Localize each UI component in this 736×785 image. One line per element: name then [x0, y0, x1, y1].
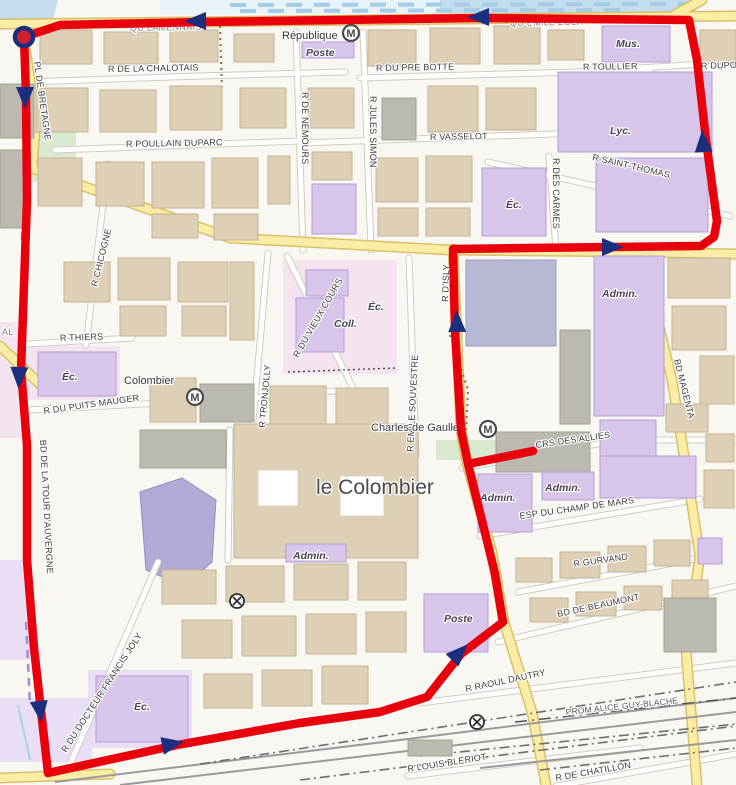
building — [408, 740, 452, 756]
building — [214, 214, 258, 240]
map-label: Éc. — [62, 370, 78, 383]
map-label: le Colombier — [316, 476, 434, 499]
building — [306, 614, 356, 654]
building — [378, 208, 418, 236]
map-label: AL — [2, 327, 14, 337]
building — [104, 32, 158, 64]
map-label: Admin. — [479, 492, 516, 504]
building — [558, 72, 712, 152]
building — [170, 30, 218, 62]
building — [664, 598, 716, 652]
building — [212, 158, 258, 208]
map-label: Éc. — [368, 300, 384, 313]
building — [262, 670, 312, 706]
building — [38, 158, 82, 206]
map-label: République — [282, 30, 338, 42]
route-start-marker[interactable] — [15, 28, 33, 46]
building — [118, 258, 170, 300]
map-label: PROM ALICE GUY-BLACHE — [565, 695, 679, 717]
building — [200, 384, 254, 422]
building — [336, 388, 388, 426]
building — [668, 258, 730, 298]
building — [672, 306, 726, 350]
building — [700, 30, 736, 64]
building — [170, 86, 222, 130]
map-label: R DE NEMOURS — [300, 92, 310, 164]
building — [654, 540, 690, 566]
building — [204, 674, 252, 708]
map-label: Admin. — [292, 550, 329, 562]
map-canvas[interactable]: MMM QU LAMENNAISQU EMILE ZOLAALR DE LA C… — [0, 0, 736, 785]
building — [100, 90, 156, 132]
building — [426, 208, 470, 236]
map-label: R POULLAIN DUPARC — [126, 137, 223, 149]
building — [494, 26, 540, 64]
building — [382, 98, 416, 140]
building — [516, 558, 552, 582]
building — [152, 162, 204, 208]
map-label: R DE LA CHALOTAIS — [108, 62, 199, 74]
map-label: R DUPO — [701, 60, 736, 71]
building — [430, 28, 480, 64]
svg-text:M: M — [483, 424, 492, 436]
building — [96, 162, 144, 206]
building — [152, 214, 198, 238]
building — [182, 620, 232, 658]
map-viewport[interactable]: MMM QU LAMENNAISQU EMILE ZOLAALR DE LA C… — [0, 0, 736, 785]
building — [700, 356, 734, 404]
building — [178, 262, 228, 302]
building — [376, 158, 418, 202]
building — [240, 88, 286, 128]
map-label: Poste — [306, 47, 335, 59]
building — [120, 306, 166, 336]
building — [40, 30, 92, 64]
building — [548, 30, 584, 60]
metro-station-icon[interactable]: M — [187, 389, 203, 405]
map-label: Colombier — [124, 375, 174, 387]
crossing-icon — [470, 715, 484, 729]
building — [466, 260, 556, 346]
map-label: Poste — [444, 613, 473, 625]
building — [368, 30, 416, 66]
building — [308, 88, 354, 128]
building — [560, 330, 590, 424]
svg-text:M: M — [190, 392, 199, 404]
map-label: Charles de Gaulle — [371, 422, 459, 434]
building — [698, 538, 722, 564]
metro-station-icon[interactable]: M — [480, 421, 496, 437]
building — [268, 156, 290, 204]
svg-text:M: M — [346, 28, 355, 40]
building — [600, 456, 696, 498]
building — [234, 34, 274, 62]
building — [312, 152, 352, 180]
building — [704, 470, 734, 508]
map-label: R DES CARMES — [551, 158, 561, 229]
building — [426, 156, 472, 202]
building — [230, 262, 254, 340]
map-label: R THIERS — [60, 331, 104, 343]
building — [428, 86, 478, 132]
building — [182, 306, 226, 336]
building — [706, 434, 734, 462]
map-label: Admin. — [544, 482, 581, 494]
building — [294, 564, 348, 600]
building — [140, 430, 226, 468]
map-label: Mus. — [616, 38, 640, 50]
building — [358, 562, 406, 600]
map-label: BD DE LA TOUR D'AUVERGNE — [38, 440, 55, 575]
building — [366, 612, 406, 652]
map-label: R DU PRE BOTTE — [376, 62, 454, 73]
crossing-icon — [230, 594, 244, 608]
building — [242, 616, 296, 656]
map-label: Coll. — [334, 318, 357, 330]
building — [162, 570, 216, 604]
building — [594, 256, 664, 416]
metro-station-icon[interactable]: M — [343, 25, 359, 41]
map-label: Éc. — [506, 198, 522, 211]
building — [486, 88, 536, 130]
map-label: Lyc. — [610, 125, 631, 137]
map-label: Admin. — [601, 288, 638, 300]
map-label: Éc. — [134, 700, 150, 713]
building — [258, 470, 298, 506]
building — [270, 386, 326, 426]
map-label: R JULES SIMON — [368, 96, 378, 168]
map-label: R TOULLIER — [583, 61, 638, 72]
building — [322, 666, 368, 704]
building — [312, 184, 356, 234]
map-label: R VASSELOT — [430, 131, 488, 142]
